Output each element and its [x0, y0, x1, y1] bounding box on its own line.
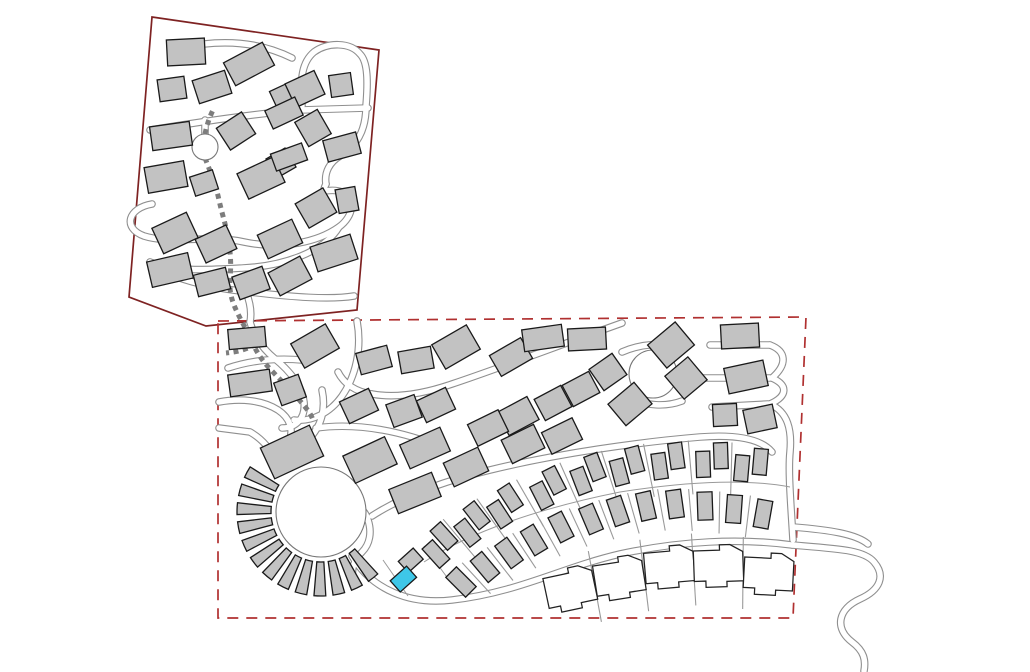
crescent-building	[314, 562, 326, 596]
building-rect	[228, 326, 267, 349]
building-footprint	[386, 395, 422, 428]
house-unit	[734, 455, 750, 482]
building-rect	[522, 324, 565, 351]
building-rect	[720, 323, 759, 349]
house-outline	[693, 544, 744, 588]
building-rect	[329, 73, 354, 98]
building-footprint	[323, 132, 362, 162]
house-unit	[609, 458, 629, 487]
building-footprint	[152, 212, 198, 253]
building-rect	[343, 437, 397, 484]
building-footprint	[343, 437, 397, 484]
fan-lot-line	[731, 443, 732, 497]
fan-lot-line	[689, 489, 693, 531]
house-rect	[753, 499, 773, 529]
building-rect	[195, 225, 237, 263]
white-house-row	[542, 544, 795, 615]
road-surface	[792, 545, 880, 671]
semi-detached-pair	[734, 447, 769, 484]
building-rect	[152, 212, 198, 253]
building-rect	[157, 76, 187, 102]
building-footprint	[270, 143, 307, 171]
semi-detached-pair	[650, 442, 686, 480]
house-rect	[446, 567, 476, 597]
house-rect	[606, 495, 629, 526]
house-rect	[579, 503, 604, 535]
house-outline-path	[542, 563, 599, 614]
house-rect	[726, 495, 743, 524]
building-footprint	[195, 225, 237, 263]
building-footprint	[257, 219, 302, 259]
semi-detached-pair	[695, 442, 728, 477]
mini-roundabout-circle	[192, 134, 218, 160]
building-rect	[432, 325, 481, 369]
building-rect	[257, 219, 302, 259]
fan-lot-line	[719, 492, 720, 534]
building-rect	[712, 403, 737, 426]
house-unit	[713, 442, 728, 468]
building-rect	[323, 132, 362, 162]
building-rect	[228, 369, 273, 397]
house-footprint	[636, 491, 657, 522]
building-rect	[144, 161, 188, 194]
building-rect	[567, 327, 606, 351]
house-outline	[542, 563, 599, 614]
house-footprint	[753, 499, 773, 529]
house-footprint	[697, 492, 713, 521]
building-footprint	[329, 73, 354, 98]
building-footprint	[724, 360, 769, 394]
building-footprint	[189, 170, 218, 196]
building-footprint	[720, 323, 759, 349]
crescent-building	[237, 503, 271, 515]
building-rect	[335, 186, 359, 213]
building-rect	[192, 70, 232, 103]
building-footprint	[335, 186, 359, 213]
building-rect	[166, 38, 205, 66]
semi-detached-pair	[567, 452, 609, 495]
building-rect	[398, 346, 434, 373]
building-footprint	[522, 324, 565, 351]
partner-house	[398, 548, 423, 573]
site-plan-map[interactable]	[0, 0, 1030, 672]
building-rect	[386, 395, 422, 428]
house-footprint	[579, 503, 604, 535]
house-outline-path	[743, 552, 794, 597]
building-footprint	[144, 161, 188, 194]
fan-lot-line	[688, 441, 693, 495]
house-rect	[666, 489, 685, 519]
house-unit	[696, 451, 711, 477]
building-rect	[724, 360, 769, 394]
house-unit	[625, 445, 645, 474]
building-footprint	[228, 326, 267, 349]
house-rect	[636, 491, 657, 522]
building-footprint	[567, 327, 606, 351]
central-plaza-circle	[276, 467, 366, 557]
selected-lot-highlight[interactable]	[390, 566, 416, 592]
semi-detached-pair	[607, 445, 647, 486]
house-footprint	[666, 489, 685, 519]
house-footprint	[446, 567, 476, 597]
house-footprint	[726, 495, 743, 524]
semi-detached-pair	[526, 466, 570, 511]
house-footprint	[606, 495, 629, 526]
building-rect	[189, 170, 218, 196]
building-rect	[389, 472, 441, 513]
road-casing	[792, 545, 880, 671]
site-plan-page	[0, 0, 1030, 672]
house-rect	[548, 511, 574, 543]
building-footprint	[432, 325, 481, 369]
house-unit	[668, 442, 685, 470]
house-unit	[752, 448, 768, 475]
house-outline-path	[693, 544, 744, 588]
building-rect	[270, 143, 307, 171]
building-footprint	[150, 121, 193, 150]
building-footprint	[398, 346, 434, 373]
building-footprint	[157, 76, 187, 102]
fan-lot-line	[658, 489, 666, 530]
building-footprint	[228, 369, 273, 397]
building-footprint	[192, 70, 232, 103]
building-footprint	[166, 38, 205, 66]
house-unit	[651, 452, 668, 480]
building-rect	[150, 121, 193, 150]
house-footprint	[548, 511, 574, 543]
building-footprint	[712, 403, 737, 426]
highlight-pair	[384, 548, 429, 592]
fan-lot-line	[745, 496, 750, 538]
house-rect	[697, 492, 713, 521]
house-outline	[743, 552, 794, 597]
building-footprint	[389, 472, 441, 513]
